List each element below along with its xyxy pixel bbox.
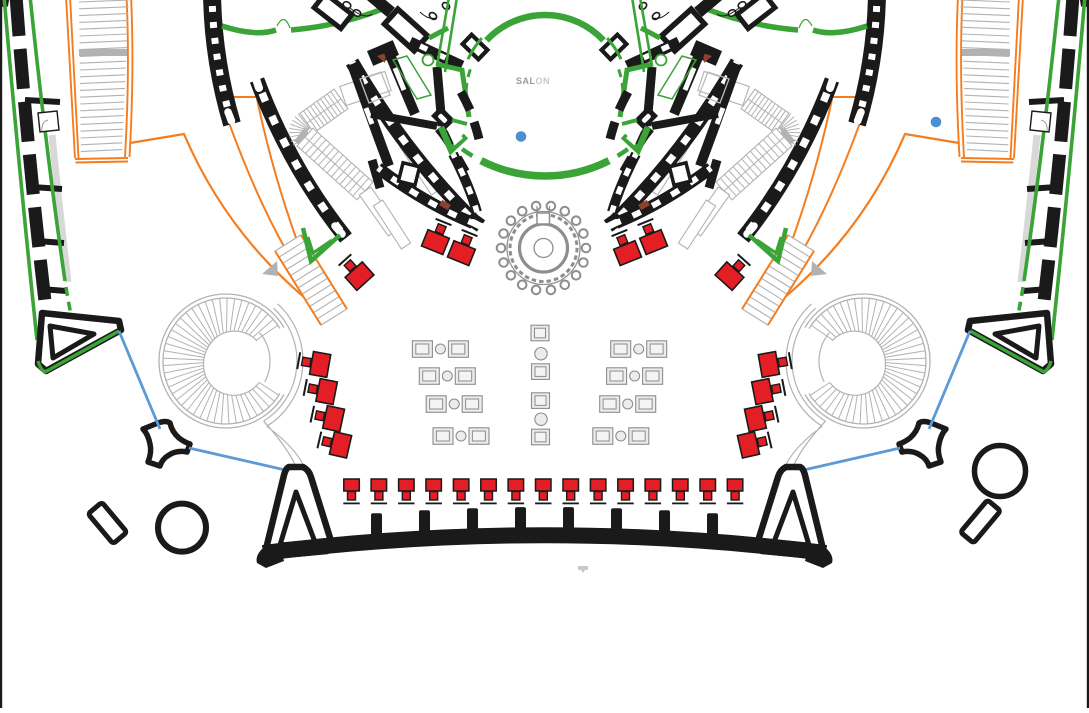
svg-text:SALON: SALON <box>516 76 550 86</box>
